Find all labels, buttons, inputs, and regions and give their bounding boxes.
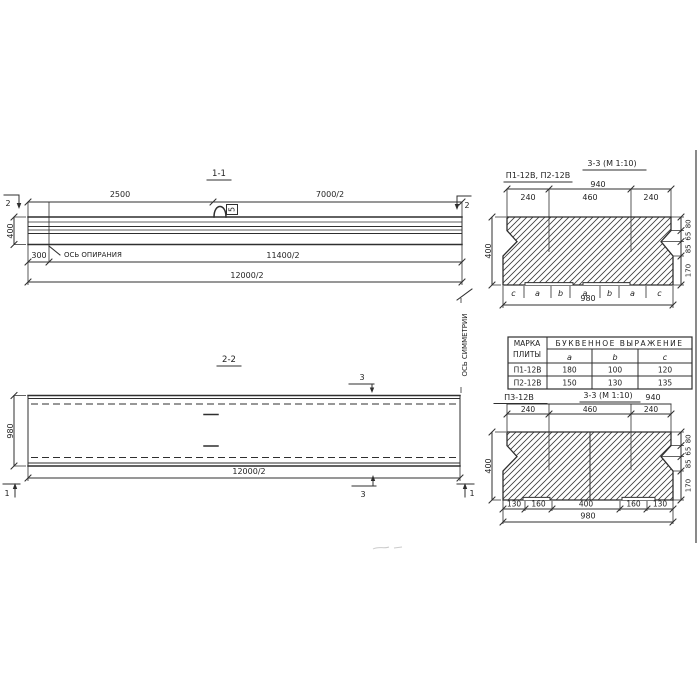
- dim-170-b: 170: [685, 479, 693, 492]
- dim-940-bottom: 940: [645, 393, 660, 402]
- table-r1-b: 100: [608, 366, 623, 375]
- dim-400-left-label-b: 400: [484, 458, 493, 473]
- dim-top: 2500 7000/2: [25, 190, 465, 217]
- table-row: П2-12В 150 130 135: [514, 379, 673, 388]
- section-3-3-top-view: П1-12В, П2-12В 3-3 (М 1:10) 940 240 460 …: [484, 159, 693, 308]
- dim-130-l: 130: [507, 500, 522, 509]
- symmetry-axis-flag: [457, 289, 472, 300]
- table-col-c: c: [663, 353, 668, 362]
- dim-460-b: 460: [583, 405, 598, 414]
- dim-65: 65: [685, 232, 693, 241]
- table-col-a: a: [567, 353, 572, 362]
- dim-130-r: 130: [653, 500, 668, 509]
- table-r2-mark: П2-12В: [514, 379, 542, 388]
- table-r2-b: 130: [608, 379, 623, 388]
- plan-center-dashes: [204, 415, 218, 447]
- plate-marks-table: МАРКА ПЛИТЫ БУКВЕННОЕ ВЫРАЖЕНИЕ a b c П1…: [508, 337, 692, 389]
- section-3-3-top-title: 3-3 (М 1:10): [587, 159, 636, 168]
- dim-460: 460: [582, 193, 597, 202]
- cut-mark-1-left: 1: [3, 483, 20, 498]
- bottom-recess-b: [583, 283, 630, 285]
- dim-7000-2: 7000/2: [316, 190, 344, 199]
- dim-980-top-section: 980: [500, 294, 676, 308]
- loop-tag-label: 5: [228, 207, 237, 212]
- dim-width-980: 980: [6, 393, 26, 470]
- dim-85: 85: [685, 244, 693, 253]
- dim-full: 12000/2: [25, 271, 465, 285]
- table-group-header: БУКВЕННОЕ ВЫРАЖЕНИЕ: [556, 339, 684, 348]
- table-row: П1-12В 180 100 120: [514, 366, 673, 375]
- slab-plan-outline: [28, 396, 460, 467]
- dim-65-b: 65: [685, 447, 693, 456]
- cut-mark-2-left-label: 2: [5, 199, 10, 208]
- symmetry-axis: ОСЬ СИММЕТРИИ: [455, 289, 472, 393]
- drawing-sheet: 1-1 2 2 2500 7000/2 5: [0, 0, 700, 700]
- lifting-loop-icon: 5: [214, 205, 238, 218]
- symmetry-axis-label: ОСЬ СИММЕТРИИ: [461, 313, 469, 376]
- section-3-3-bottom-view: П3-12В 3-3 (М 1:10) 940 240 460 240 400: [484, 391, 693, 525]
- section-2-2-view: 2-2 3 980 12000/2: [3, 289, 475, 499]
- table-r2-a: 150: [562, 379, 577, 388]
- dim-160-l: 160: [531, 500, 546, 509]
- dim-240-a-b: 240: [521, 405, 536, 414]
- letter-b2: b: [607, 289, 612, 298]
- section-2-2-title: 2-2: [222, 355, 236, 365]
- section-1-1-view: 1-1 2 2 2500 7000/2 5: [4, 169, 471, 285]
- cut-mark-2-right: 2: [455, 196, 471, 210]
- dim-85-b: 85: [685, 459, 693, 468]
- table-r1-mark: П1-12В: [514, 366, 542, 375]
- letter-a1: a: [535, 289, 540, 298]
- dim-160-r: 160: [626, 500, 641, 509]
- table-r1-a: 180: [562, 366, 577, 375]
- dim-940-top: 940: [590, 180, 605, 189]
- table-col-b: b: [612, 353, 617, 362]
- technical-drawing: 1-1 2 2 2500 7000/2 5: [0, 0, 700, 700]
- cut-mark-3-bottom: 3: [352, 475, 376, 499]
- letter-c1: c: [511, 289, 516, 298]
- bearing-axis-label: ОСЬ ОПИРАНИЯ: [64, 251, 122, 259]
- letter-b1: b: [558, 289, 563, 298]
- dim-980-bottom-label: 980: [580, 512, 595, 521]
- dim-400-mid: 400: [579, 500, 594, 509]
- dim-plan-12000-2: 12000/2: [232, 467, 265, 476]
- dim-11400-2: 11400/2: [266, 251, 299, 260]
- dim-300: 300: [31, 251, 46, 260]
- cross-section-body-p3: [503, 432, 673, 500]
- table-col1-header-line2: ПЛИТЫ: [513, 350, 541, 359]
- dim-240-b: 240: [643, 193, 658, 202]
- beam-outline: [28, 217, 462, 245]
- dim-400-left-label: 400: [484, 243, 493, 258]
- cut-mark-1-right-label: 1: [469, 489, 474, 498]
- letter-a3: a: [630, 289, 635, 298]
- letter-c2: c: [657, 289, 662, 298]
- cut-mark-1-left-label: 1: [4, 489, 9, 498]
- table-r2-c: 135: [658, 379, 673, 388]
- bottom-recess-a: [525, 283, 573, 285]
- plates-label: П1-12В, П2-12В: [506, 171, 570, 180]
- dim-80-b: 80: [685, 434, 693, 443]
- dim-240-a: 240: [520, 193, 535, 202]
- cut-mark-2-right-label: 2: [464, 201, 469, 210]
- plate-label-p3: П3-12В: [504, 393, 534, 402]
- scan-artifact: [373, 547, 402, 549]
- cut-mark-1-right: 1: [457, 483, 475, 498]
- dim-height-400: 400: [6, 214, 26, 248]
- dim-12000-2: 12000/2: [230, 271, 263, 280]
- cut-mark-3-top-label: 3: [359, 373, 364, 382]
- dim-2500: 2500: [110, 190, 130, 199]
- dim-400-label: 400: [6, 223, 15, 238]
- cut-mark-3-bottom-label: 3: [360, 490, 365, 499]
- dim-plan-full: 12000/2: [25, 466, 463, 481]
- dim-240-b-b: 240: [644, 405, 659, 414]
- section-1-1-title: 1-1: [212, 169, 226, 179]
- dim-80: 80: [685, 219, 693, 228]
- cut-mark-3-top: 3: [349, 373, 374, 393]
- dim-980-label: 980: [6, 423, 15, 438]
- cross-section-body-p1p2: [503, 217, 673, 285]
- section-3-3-bottom-title: 3-3 (М 1:10): [583, 391, 632, 400]
- table-col1-header-line1: МАРКА: [514, 339, 541, 348]
- dim-980-top-label: 980: [580, 294, 595, 303]
- cut-mark-2-left: 2: [4, 195, 21, 209]
- dim-980-bottom-section: 980: [500, 512, 676, 526]
- dim-170: 170: [685, 264, 693, 277]
- table-r1-c: 120: [658, 366, 673, 375]
